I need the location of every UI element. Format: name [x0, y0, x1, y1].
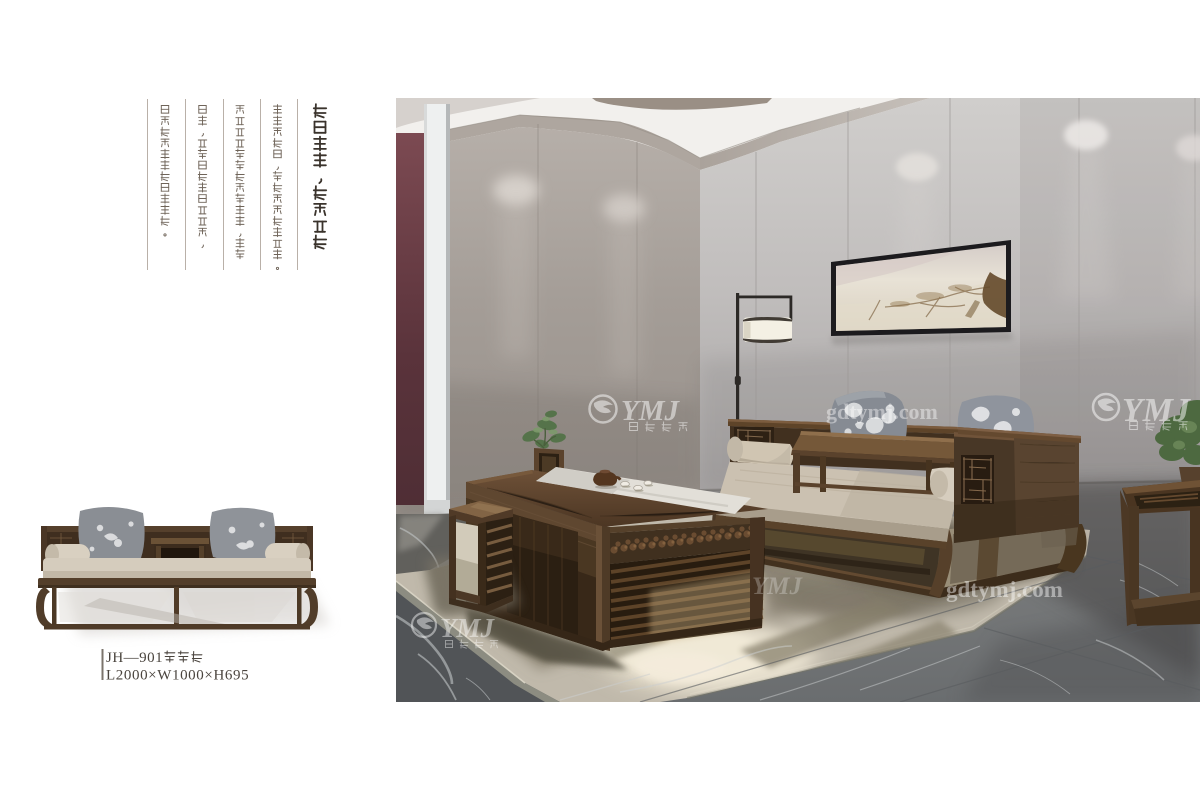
svg-text:L2000×W1000×H695: L2000×W1000×H695 [106, 668, 249, 684]
svg-text:YMJ: YMJ [1122, 392, 1191, 429]
svg-text:YMJ: YMJ [440, 613, 496, 643]
svg-text:gdtymj.com: gdtymj.com [826, 399, 938, 424]
svg-text:YMJ: YMJ [752, 573, 804, 600]
svg-text:gdtymj.com: gdtymj.com [946, 577, 1063, 602]
svg-text:JH—901: JH—901 [106, 650, 163, 666]
